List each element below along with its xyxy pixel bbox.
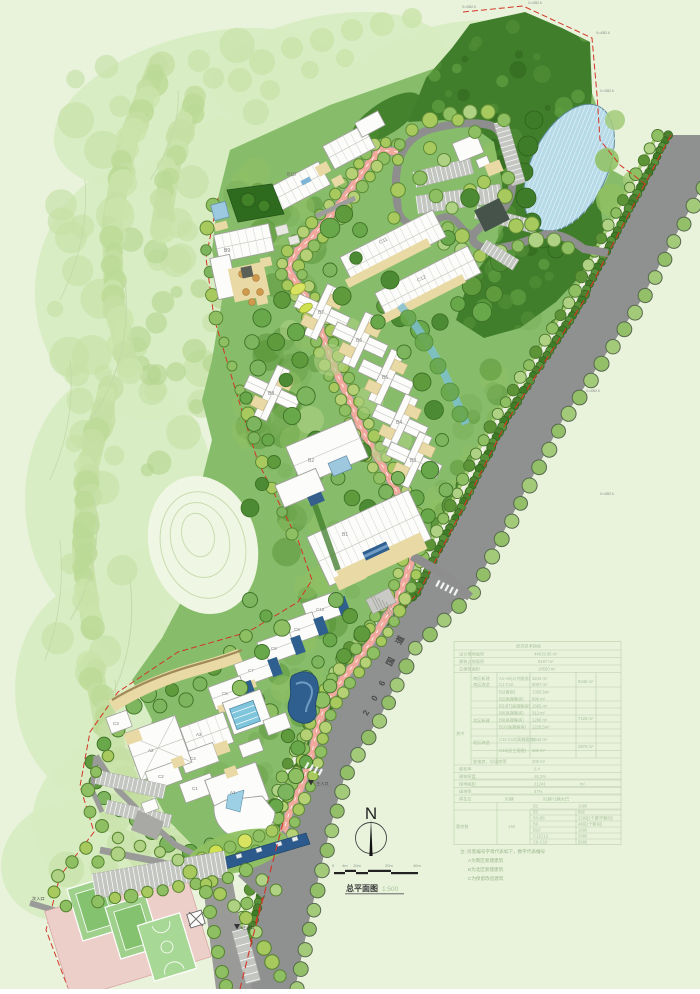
svg-text:绿地率: 绿地率 (459, 788, 472, 795)
svg-text:C6: C6 (222, 691, 228, 696)
svg-text:B7: B7 (318, 310, 324, 316)
svg-text:X=4052.6: X=4052.6 (600, 89, 614, 93)
svg-text:C为保留改造建筑: C为保留改造建筑 (468, 875, 504, 882)
svg-text:A为南区新建建筑: A为南区新建建筑 (468, 857, 504, 864)
svg-text:B9: B9 (224, 248, 230, 254)
svg-text:4间(2个套间): 4间(2个套间) (578, 821, 603, 828)
svg-text:建筑占地面积: 建筑占地面积 (459, 658, 484, 665)
svg-text:m²: m² (580, 782, 585, 787)
svg-text:44919.95 m²: 44919.95 m² (534, 652, 558, 657)
svg-text:B3-B7(高端客房): B3-B7(高端客房) (499, 703, 531, 710)
svg-text:总建筑面积: 总建筑面积 (459, 666, 480, 673)
svg-text:18550 m²: 18550 m² (538, 667, 556, 672)
svg-text:91辆+2辆大巴: 91辆+2辆大巴 (543, 796, 569, 803)
svg-text:B1: B1 (342, 532, 348, 538)
svg-text:建筑密度: 建筑密度 (459, 773, 477, 780)
svg-text:3244 m²: 3244 m² (532, 676, 548, 681)
svg-text:主出口: 主出口 (242, 924, 255, 931)
svg-text:B2: B2 (533, 810, 539, 815)
svg-text:A1: A1 (230, 790, 236, 795)
svg-text:变电房、垃圾房等: 变电房、垃圾房等 (473, 758, 507, 765)
svg-text:B9(高端客房): B9(高端客房) (499, 717, 524, 724)
svg-text:X=4052.6: X=4052.6 (318, 784, 332, 788)
svg-text:B2(高端客房): B2(高端客房) (499, 696, 524, 703)
svg-text:93辆: 93辆 (505, 796, 514, 803)
svg-text:B为北区新建建筑: B为北区新建建筑 (468, 866, 504, 873)
svg-text:200 m²: 200 m² (532, 759, 546, 764)
svg-text:1280 m²: 1280 m² (532, 718, 548, 723)
svg-text:C3: C3 (113, 721, 119, 726)
svg-text:C13(员工宿舍): C13(员工宿舍) (499, 747, 527, 754)
svg-text:C4: C4 (190, 756, 196, 761)
svg-text:C9: C9 (294, 627, 300, 632)
svg-text:B1: B1 (533, 804, 539, 809)
svg-text:A3: A3 (196, 732, 202, 737)
svg-text:B1(客房): B1(客房) (499, 689, 516, 696)
svg-text:1355.5m²: 1355.5m² (532, 690, 550, 695)
svg-text:客房数: 客房数 (456, 823, 469, 830)
svg-text:21241: 21241 (534, 782, 546, 787)
svg-text:注: 房客编号字母代表如下，数字代表幢号: 注: 房客编号字母代表如下，数字代表幢号 (460, 848, 546, 855)
svg-text:C1: C1 (192, 786, 198, 791)
svg-text:X=4052.6: X=4052.6 (462, 5, 476, 9)
svg-text:10间: 10间 (578, 803, 587, 810)
svg-text:47%: 47% (534, 789, 543, 794)
svg-text:容积率: 容积率 (459, 766, 472, 773)
svg-text:B3: B3 (410, 458, 416, 464)
svg-text:332 m²: 332 m² (532, 748, 546, 753)
svg-text:C6-C10: C6-C10 (533, 840, 548, 845)
svg-text:B5: B5 (382, 375, 388, 381)
svg-text:停车位: 停车位 (459, 796, 472, 803)
svg-text:北区改造: 北区改造 (473, 739, 491, 746)
svg-text:C8: C8 (271, 646, 277, 651)
svg-text:7128 m²: 7128 m² (578, 716, 594, 721)
svg-text:146: 146 (508, 824, 516, 829)
svg-text:C11-C12(高端客房): C11-C12(高端客房) (499, 736, 536, 743)
svg-text:A2: A2 (148, 748, 154, 753)
svg-text:B2: B2 (308, 458, 314, 464)
svg-text:1665 m²: 1665 m² (532, 704, 548, 709)
svg-text:南区改造: 南区改造 (473, 681, 491, 688)
svg-text:5097 m²: 5097 m² (532, 682, 548, 687)
svg-text:次入口: 次入口 (32, 895, 45, 902)
svg-text:8197 m²: 8197 m² (538, 659, 554, 664)
svg-text:设计用地面积: 设计用地面积 (459, 651, 484, 658)
svg-text:2876 m²: 2876 m² (578, 744, 594, 749)
svg-text:B3-B8: B3-B8 (533, 816, 545, 821)
svg-text:总平面图: 总平面图 (346, 883, 378, 893)
svg-text:北区新建: 北区新建 (473, 717, 491, 724)
svg-text:B8(高端客房): B8(高端客房) (499, 710, 524, 717)
svg-text:4m: 4m (342, 863, 348, 868)
svg-text:其中: 其中 (456, 730, 464, 737)
svg-text:B10: B10 (533, 828, 541, 833)
svg-text:C10: C10 (316, 607, 325, 612)
svg-text:B6: B6 (356, 338, 362, 344)
svg-text:X=4052.6: X=4052.6 (596, 31, 610, 35)
svg-text:8346 m²: 8346 m² (578, 679, 594, 684)
svg-text:B10(高端客房): B10(高端客房) (499, 724, 527, 731)
svg-text:0.4: 0.4 (534, 767, 540, 772)
svg-text:1:500: 1:500 (382, 886, 399, 893)
svg-text:56间: 56间 (578, 839, 587, 846)
svg-text:绿地面积: 绿地面积 (459, 781, 476, 788)
svg-text:20m: 20m (385, 863, 393, 868)
svg-text:B9: B9 (533, 822, 539, 827)
svg-text:B8: B8 (268, 391, 274, 397)
svg-text:C11C12: C11C12 (533, 834, 549, 839)
svg-text:10m: 10m (353, 863, 361, 868)
svg-text:28间: 28间 (578, 833, 587, 840)
svg-text:40m: 40m (413, 863, 421, 868)
svg-text:8间: 8间 (578, 809, 585, 816)
svg-text:C1-C10: C1-C10 (499, 682, 514, 687)
svg-text:2544 m²: 2544 m² (532, 737, 548, 742)
svg-text:C2: C2 (158, 774, 164, 779)
svg-text:18.2%: 18.2% (534, 774, 546, 779)
svg-text:22间(2个豪华套间): 22间(2个豪华套间) (578, 815, 614, 822)
svg-text:896 m²: 896 m² (532, 697, 546, 702)
svg-text:经济技术指标: 经济技术指标 (516, 643, 541, 650)
svg-text:X=4052.6: X=4052.6 (528, 1, 542, 5)
svg-text:B10: B10 (287, 172, 296, 178)
svg-text:313 m²: 313 m² (532, 711, 546, 716)
svg-text:X=4052.6: X=4052.6 (600, 492, 614, 496)
svg-text:16间: 16间 (578, 827, 587, 834)
svg-text:C7: C7 (248, 668, 254, 673)
svg-text:B4: B4 (396, 420, 402, 426)
svg-text:X=4052.6: X=4052.6 (586, 389, 600, 393)
svg-text:1228.5m²: 1228.5m² (532, 725, 550, 730)
